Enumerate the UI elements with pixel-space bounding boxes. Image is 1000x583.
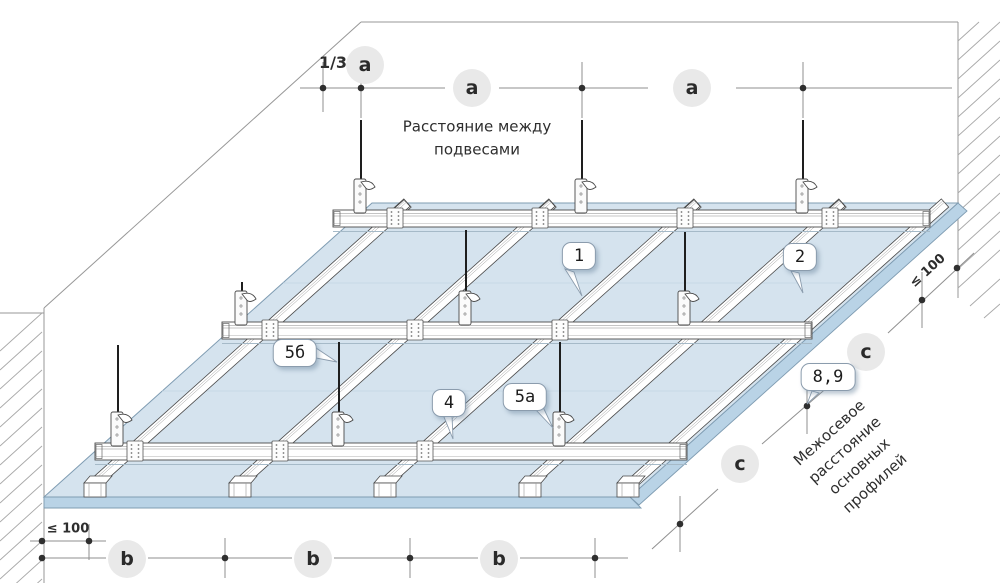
fraction-label: 1/3 (319, 51, 347, 75)
axis-marker-a: a (673, 69, 711, 107)
edge-offset-right-label: ≤ 100 (906, 250, 951, 293)
axis-marker-b: b (294, 540, 332, 578)
axis-marker-a: a (453, 69, 491, 107)
callout-8,9: 8,9 (801, 363, 856, 391)
main-profile-spacing-caption: Межосевое расстояние основных профилей (767, 375, 937, 541)
callout-1: 1 (562, 242, 596, 270)
edge-offset-left-label: ≤ 100 (47, 519, 90, 539)
ceiling-scheme-canvas: aaabbbcc125б45a8,91/3Расстояние между по… (0, 0, 1000, 583)
callout-2: 2 (783, 243, 817, 271)
annotation-overlay: aaabbbcc125б45a8,91/3Расстояние между по… (0, 0, 1000, 583)
axis-marker-b: b (108, 540, 146, 578)
axis-marker-a: a (346, 46, 384, 84)
callout-5a: 5a (503, 383, 547, 411)
axis-marker-c: c (721, 445, 759, 483)
hanger-spacing-caption: Расстояние между подвесами (403, 116, 552, 161)
callout-4: 4 (432, 389, 466, 417)
callout-5б: 5б (273, 339, 317, 367)
axis-marker-b: b (480, 540, 518, 578)
